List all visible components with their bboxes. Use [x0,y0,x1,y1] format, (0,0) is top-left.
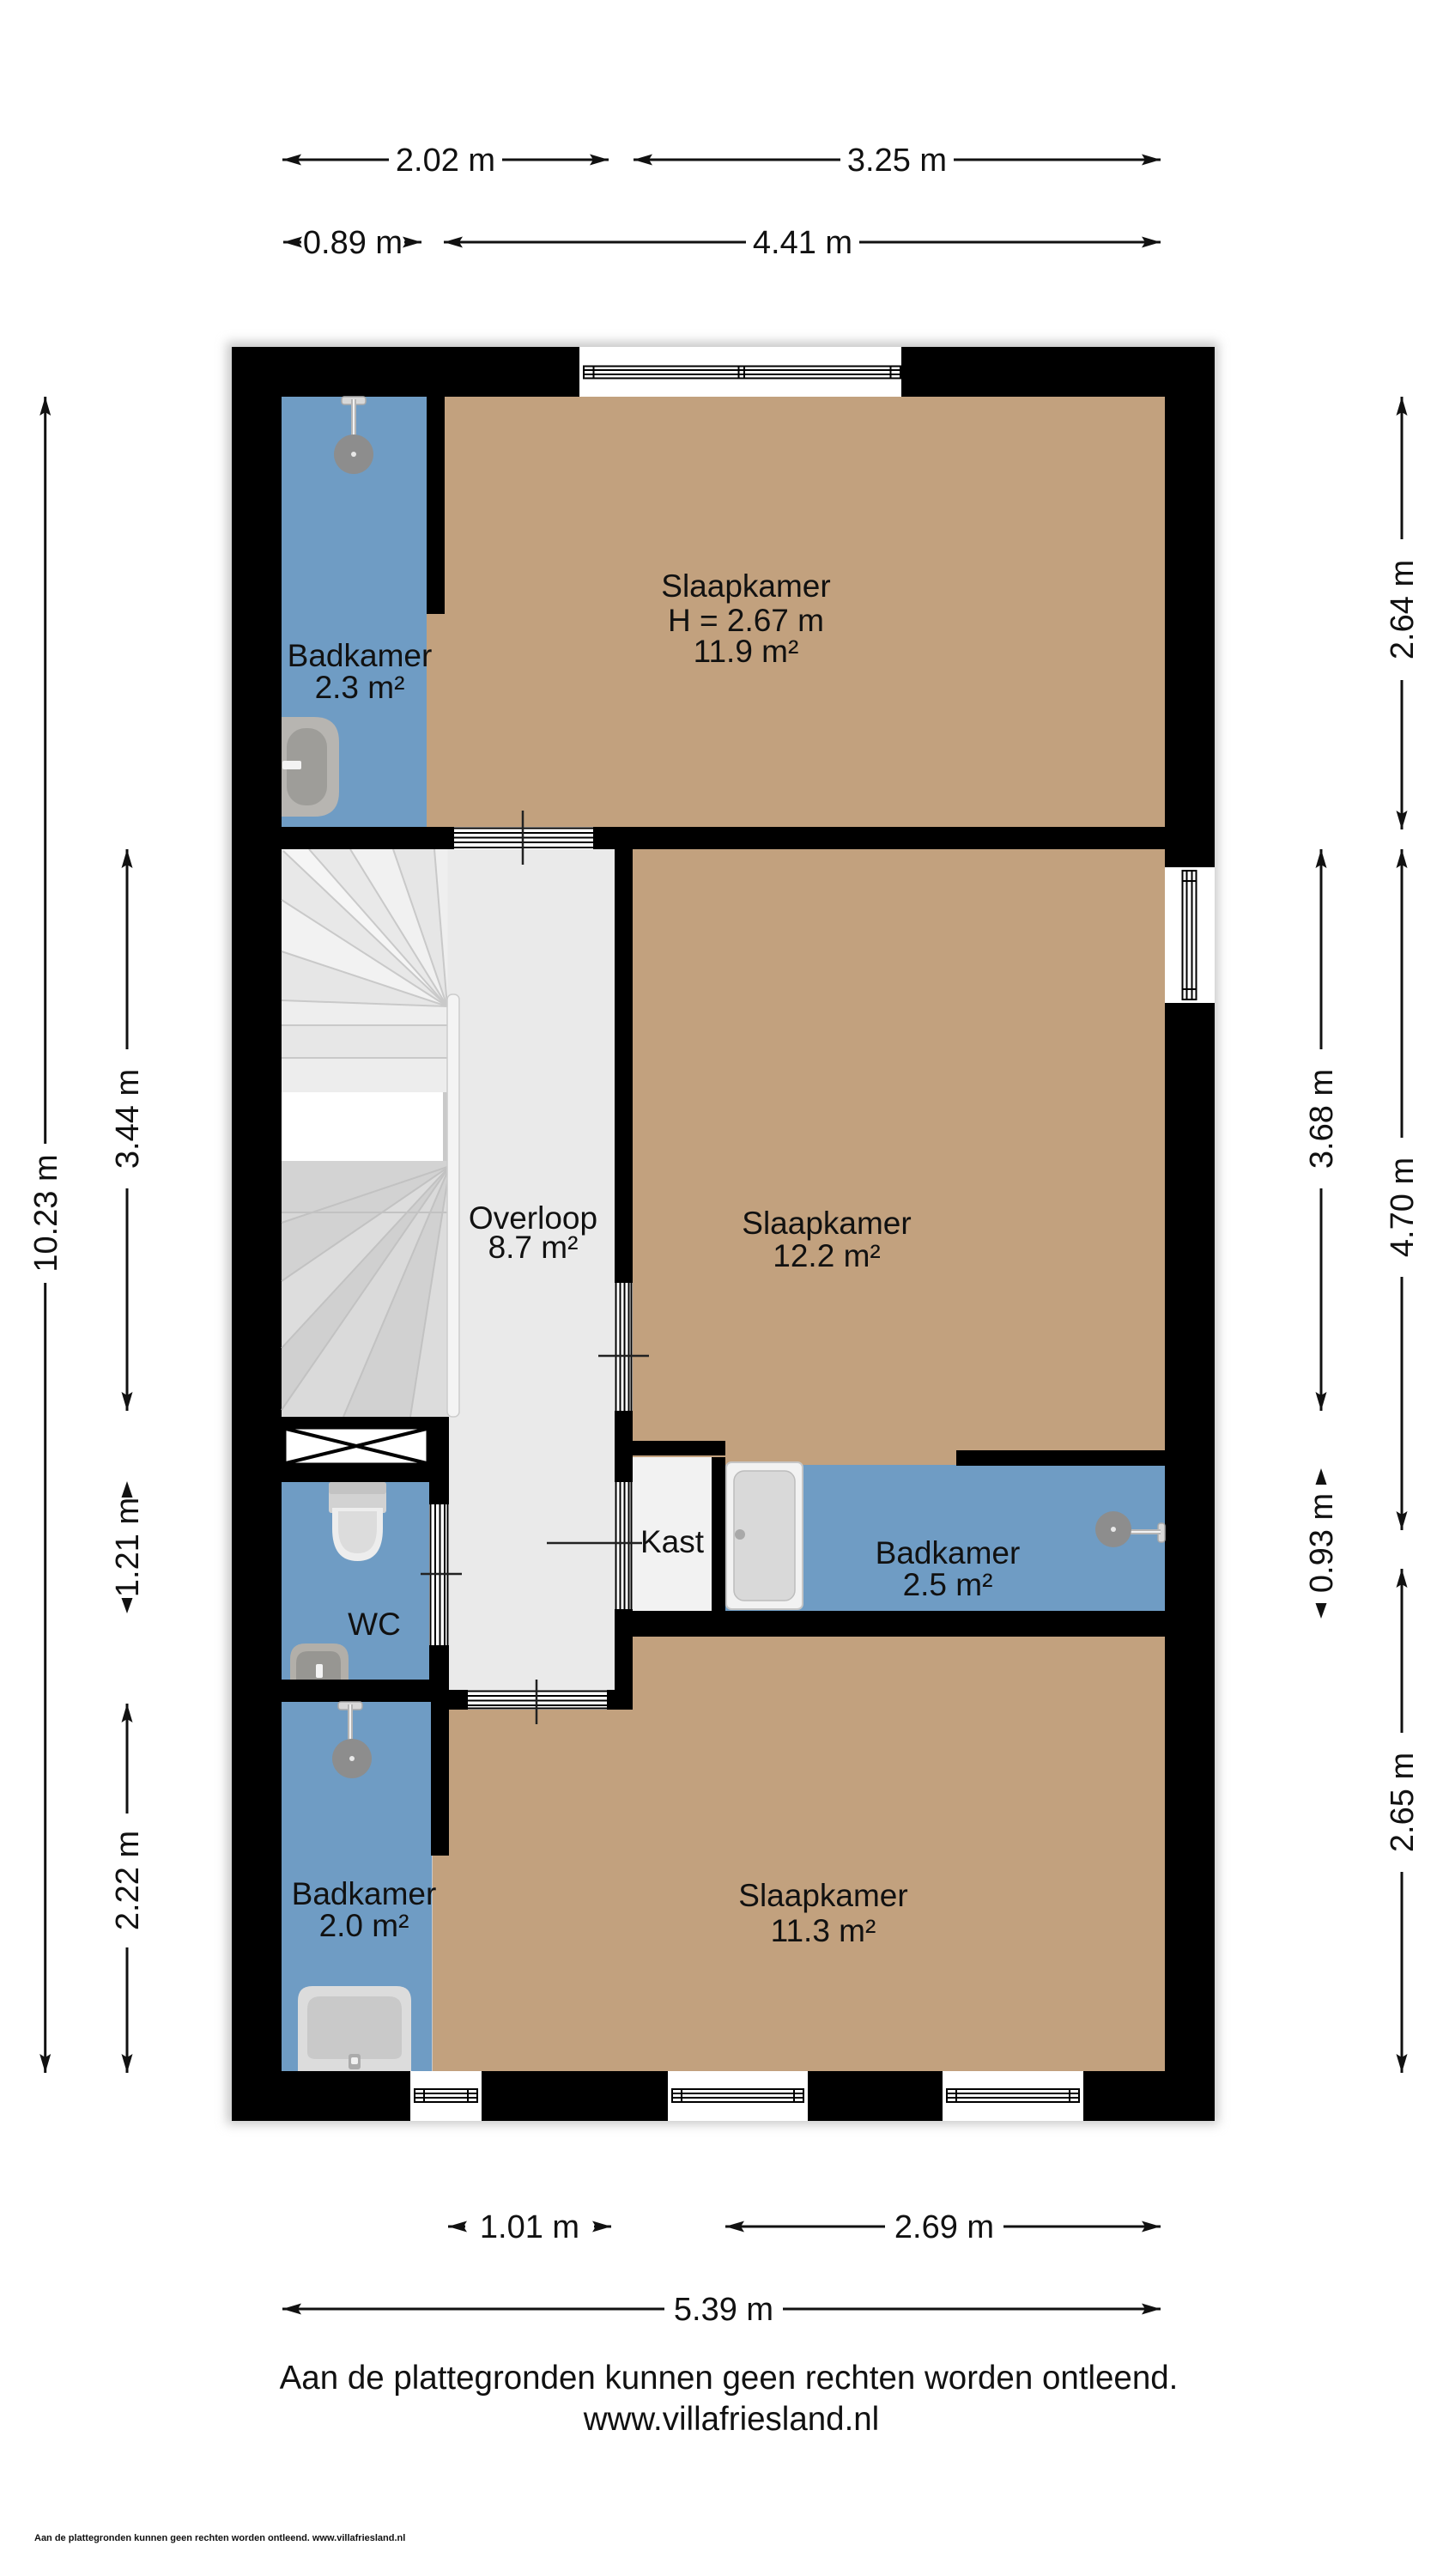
svg-text:Aan de plattegronden kunnen ge: Aan de plattegronden kunnen geen rechten… [280,2360,1179,2397]
svg-text:2.69 m: 2.69 m [894,2209,994,2245]
svg-text:0.93 m: 0.93 m [1304,1493,1340,1593]
svg-text:3.68 m: 3.68 m [1304,1069,1340,1169]
svg-text:5.39 m: 5.39 m [674,2292,773,2328]
svg-text:Badkamer: Badkamer [876,1535,1021,1571]
svg-text:www.villafriesland.nl: www.villafriesland.nl [583,2401,880,2438]
svg-text:4.70 m: 4.70 m [1385,1157,1421,1257]
svg-text:2.5 m²: 2.5 m² [903,1567,993,1602]
svg-text:2.64 m: 2.64 m [1385,560,1421,659]
svg-text:Slaapkamer: Slaapkamer [742,1206,911,1241]
svg-text:Slaapkamer: Slaapkamer [661,568,830,604]
svg-text:1.01 m: 1.01 m [480,2209,579,2245]
svg-text:11.3 m²: 11.3 m² [771,1913,876,1948]
svg-text:0.89 m: 0.89 m [303,225,403,261]
svg-text:10.23 m: 10.23 m [28,1154,64,1272]
svg-text:2.65 m: 2.65 m [1385,1753,1421,1852]
svg-text:Kast: Kast [640,1524,705,1559]
svg-text:WC: WC [348,1607,401,1642]
svg-text:Badkamer: Badkamer [288,638,433,673]
svg-text:2.0 m²: 2.0 m² [319,1908,409,1943]
svg-text:2.3 m²: 2.3 m² [315,670,405,705]
svg-text:2.02 m: 2.02 m [396,143,495,179]
svg-text:3.44 m: 3.44 m [110,1069,146,1169]
svg-text:Badkamer: Badkamer [292,1876,437,1911]
svg-text:2.22 m: 2.22 m [110,1831,146,1930]
svg-text:11.9 m²: 11.9 m² [694,634,799,669]
svg-text:1.21 m: 1.21 m [110,1498,146,1597]
svg-text:12.2 m²: 12.2 m² [773,1238,880,1273]
svg-text:3.25 m: 3.25 m [847,143,947,179]
svg-text:4.41 m: 4.41 m [753,225,852,261]
svg-text:8.7 m²: 8.7 m² [488,1230,579,1265]
svg-text:Aan de plattegronden kunnen ge: Aan de plattegronden kunnen geen rechten… [34,2533,405,2543]
svg-text:H = 2.67 m: H = 2.67 m [668,603,824,638]
svg-text:Slaapkamer: Slaapkamer [738,1878,907,1913]
